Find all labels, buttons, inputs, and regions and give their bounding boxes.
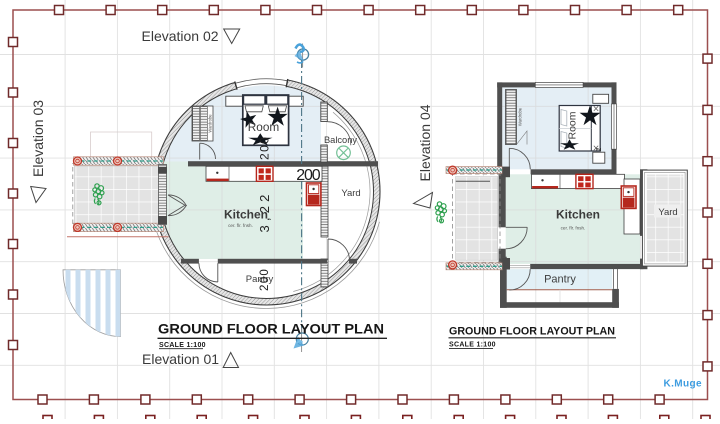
svg-text:200: 200 (296, 167, 321, 184)
svg-text:2: 2 (596, 148, 603, 152)
svg-text:Wardrobe: Wardrobe (518, 107, 523, 126)
svg-text:K.Muge: K.Muge (664, 379, 703, 390)
svg-text:Pantry: Pantry (544, 273, 576, 285)
svg-text:Wardrobe: Wardrobe (208, 114, 213, 133)
svg-text:cer. flr. fnsh.: cer. flr. fnsh. (228, 223, 253, 228)
svg-text:3,22: 3,22 (257, 190, 272, 232)
svg-text:Elevation 03: Elevation 03 (30, 100, 46, 177)
svg-text:200: 200 (259, 268, 271, 291)
svg-text:cer. flr. fnsh.: cer. flr. fnsh. (561, 226, 586, 231)
svg-text:200: 200 (258, 136, 272, 160)
svg-text:GROUND FLOOR LAYOUT PLAN: GROUND FLOOR LAYOUT PLAN (449, 326, 615, 338)
svg-text:SCALE 1:100: SCALE 1:100 (449, 342, 496, 349)
svg-text:Room: Room (248, 120, 280, 134)
svg-text:Kitchen: Kitchen (556, 207, 600, 221)
svg-text:Yard: Yard (341, 188, 360, 199)
svg-text:SCALE 1:100: SCALE 1:100 (159, 342, 206, 349)
svg-text:Room: Room (567, 111, 579, 139)
svg-text:Balcony: Balcony (324, 135, 357, 145)
svg-text:Elevation 01: Elevation 01 (142, 351, 219, 367)
svg-text:Elevation 02: Elevation 02 (142, 28, 219, 44)
svg-text:GROUND FLOOR LAYOUT PLAN: GROUND FLOOR LAYOUT PLAN (158, 322, 384, 337)
svg-text:Yard: Yard (658, 207, 677, 218)
svg-text:Elevation 04: Elevation 04 (417, 104, 433, 181)
